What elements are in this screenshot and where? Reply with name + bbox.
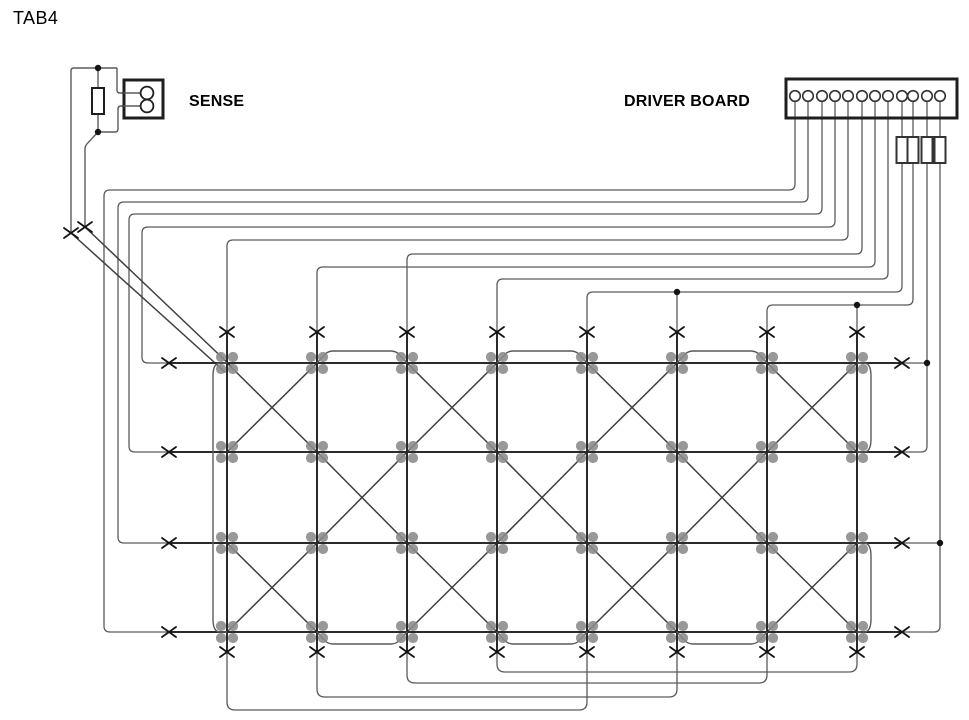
- junction-dot: [924, 360, 930, 366]
- junction-dot: [95, 65, 101, 71]
- sense-components: [92, 80, 163, 118]
- junction-dot: [854, 302, 860, 308]
- wiring-diagram-canvas: TAB4 SENSE DRIVER BOARD: [0, 0, 969, 720]
- driver-resistor: [935, 137, 946, 163]
- driver-pin: [857, 91, 868, 102]
- driver-pin: [883, 91, 894, 102]
- driver-board: [786, 79, 957, 163]
- grid-bus-lines: [169, 332, 902, 652]
- driver-pin: [790, 91, 801, 102]
- junction-dot: [674, 289, 680, 295]
- driver-board-label: DRIVER BOARD: [624, 93, 750, 111]
- driver-resistor: [922, 137, 933, 163]
- driver-pin: [922, 91, 933, 102]
- driver-pin: [817, 91, 828, 102]
- sense-resistor: [92, 88, 104, 114]
- driver-pin: [870, 91, 881, 102]
- junction-dot: [95, 129, 101, 135]
- sense-pin: [141, 87, 154, 100]
- page-title: TAB4: [13, 8, 58, 29]
- sense-pin: [141, 100, 154, 113]
- driver-pin: [935, 91, 946, 102]
- diagonal-wires: [71, 227, 857, 632]
- junction-dot: [937, 540, 943, 546]
- driver-resistor: [908, 137, 919, 163]
- sense-label: SENSE: [189, 93, 244, 111]
- driver-pin: [843, 91, 854, 102]
- driver-pin: [830, 91, 841, 102]
- crimp-x-marks: [64, 222, 909, 657]
- schematic-svg: [0, 0, 969, 720]
- driver-resistor: [897, 137, 908, 163]
- driver-pin: [908, 91, 919, 102]
- driver-pin: [803, 91, 814, 102]
- driver-pin: [897, 91, 908, 102]
